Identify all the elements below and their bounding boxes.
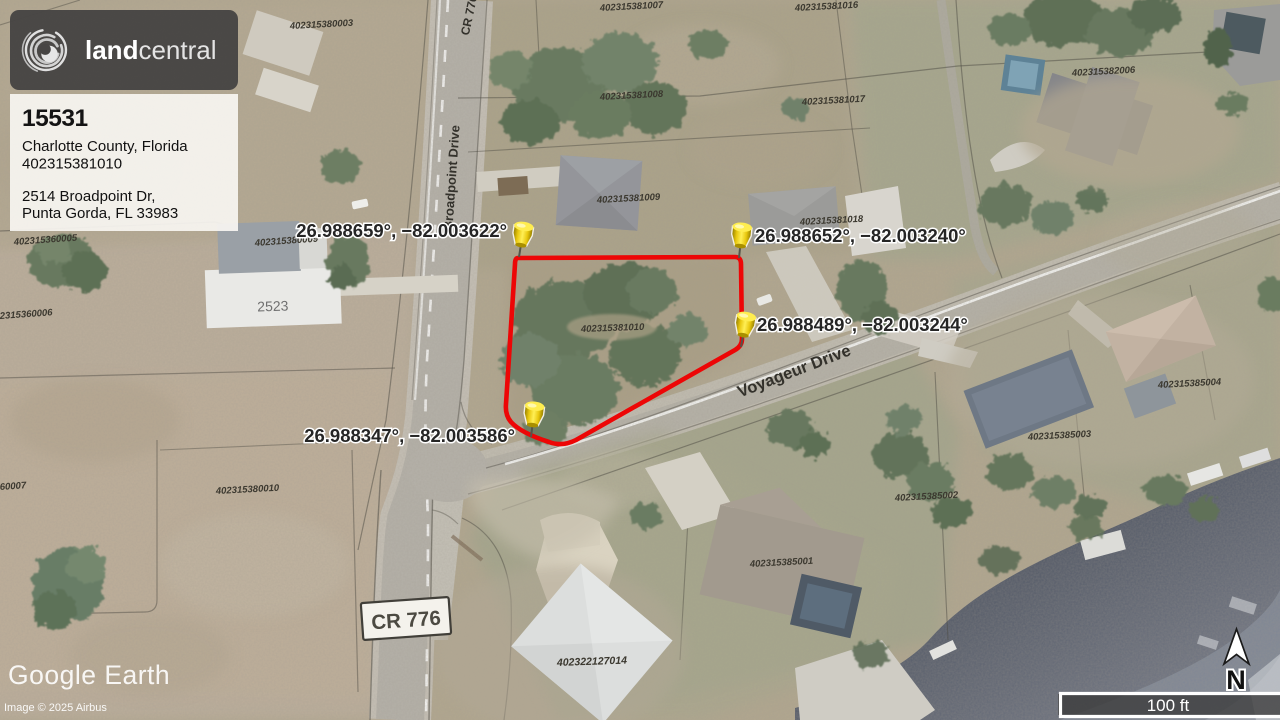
svg-text:CR 776: CR 776 xyxy=(371,607,442,635)
svg-text:N: N xyxy=(1226,665,1246,695)
svg-text:26.988659°, −82.003622°: 26.988659°, −82.003622° xyxy=(296,220,507,241)
svg-text:2523: 2523 xyxy=(257,297,289,314)
svg-text:Image © 2025 Airbus: Image © 2025 Airbus xyxy=(4,702,107,714)
svg-text:15531: 15531 xyxy=(22,105,88,132)
svg-text:Google Earth: Google Earth xyxy=(8,660,170,690)
svg-text:landcentral: landcentral xyxy=(85,35,217,65)
svg-text:26.988652°, −82.003240°: 26.988652°, −82.003240° xyxy=(755,225,966,246)
svg-text:2514 Broadpoint Dr,: 2514 Broadpoint Dr, xyxy=(22,188,155,205)
svg-text:26.988347°, −82.003586°: 26.988347°, −82.003586° xyxy=(304,425,515,446)
svg-text:402315381010: 402315381010 xyxy=(580,322,645,335)
svg-text:100 ft: 100 ft xyxy=(1147,696,1190,715)
svg-text:Charlotte County, Florida: Charlotte County, Florida xyxy=(22,138,188,155)
svg-text:26.988489°, −82.003244°: 26.988489°, −82.003244° xyxy=(757,314,968,335)
svg-text:Punta Gorda, FL 33983: Punta Gorda, FL 33983 xyxy=(22,205,178,222)
svg-text:60007: 60007 xyxy=(0,480,27,493)
svg-text:402315381010: 402315381010 xyxy=(22,156,122,173)
svg-text:402322127014: 402322127014 xyxy=(556,655,628,669)
